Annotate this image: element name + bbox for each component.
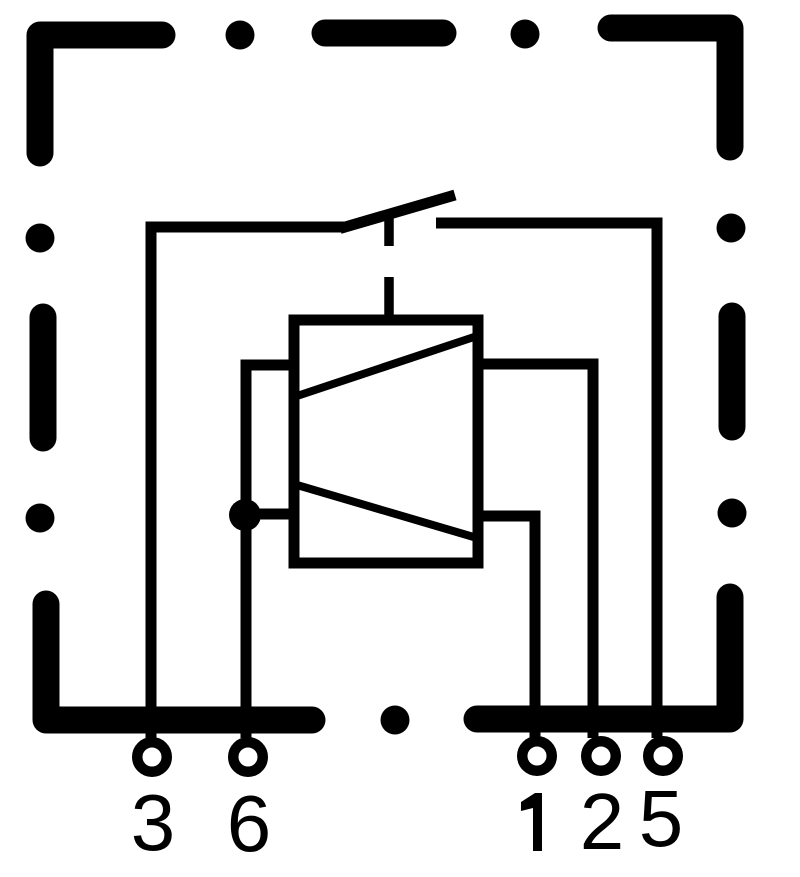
svg-text:5: 5: [639, 774, 684, 863]
svg-text:6: 6: [227, 779, 272, 868]
svg-text:3: 3: [131, 778, 176, 867]
svg-text:2: 2: [580, 777, 625, 866]
